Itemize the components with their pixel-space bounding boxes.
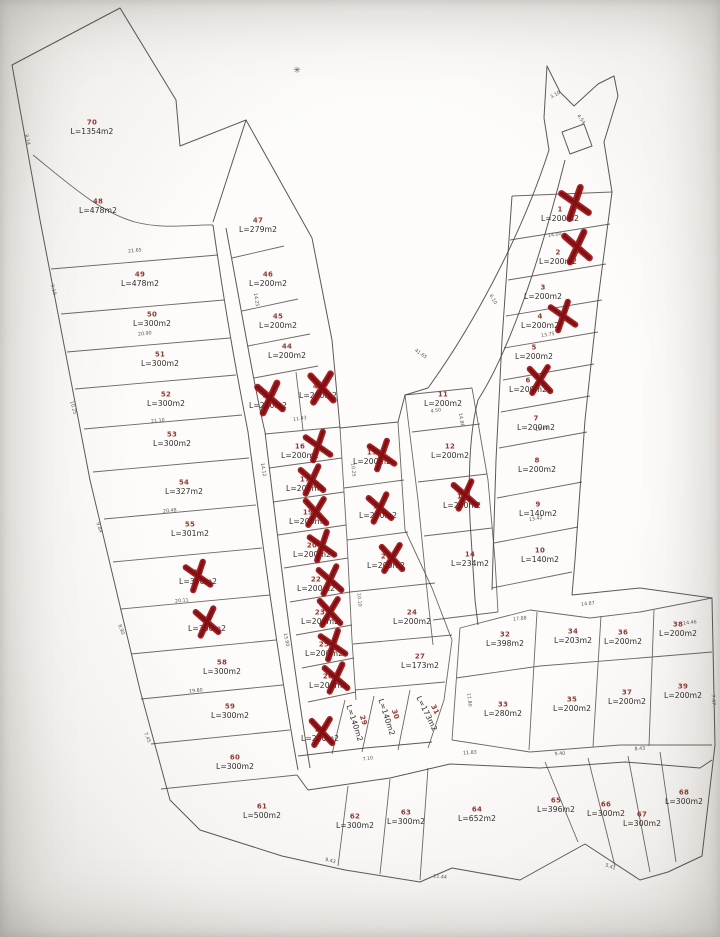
plot-area-label: L=300m2 <box>153 439 191 448</box>
plot-number: 27 <box>415 653 425 661</box>
plot-67: 67L=300m2 <box>623 811 661 829</box>
plot-number: 38 <box>673 621 683 629</box>
plot-number: 65 <box>551 797 561 805</box>
dimension-mark: 21.65 <box>128 247 142 254</box>
plot-number: 39 <box>678 683 688 691</box>
plot-64: 64L=652m2 <box>458 806 496 824</box>
plot-area-label: L=300m2 <box>133 319 171 328</box>
plot-area-label: L=200m2 <box>393 617 431 626</box>
plot-number: 62 <box>350 813 360 821</box>
plot-27: 27L=173m2 <box>401 653 439 671</box>
dimension-mark: 17.88 <box>513 615 527 622</box>
plot-area-label: L=200m2 <box>509 385 547 394</box>
plot-area-label: L=300m2 <box>141 359 179 368</box>
plot-area-label: L=203m2 <box>554 636 592 645</box>
plot-54: 54L=327m2 <box>165 479 203 497</box>
dimension-mark: 11.44 <box>433 873 447 880</box>
plot-number: 68 <box>679 789 689 797</box>
plot-14: 14L=234m2 <box>451 551 489 569</box>
dimension-mark: 9.40 <box>554 751 565 758</box>
plot-26: 26L=200m2 <box>309 664 347 691</box>
plot-13: 13L=200m2 <box>443 481 481 510</box>
plot-area-label: L=478m2 <box>79 206 117 215</box>
plot-16: 16L=200m2 <box>281 432 330 460</box>
plot-22: 22L=200m2 <box>297 566 341 593</box>
plot-area-label: L=200m2 <box>608 697 646 706</box>
plot-1: 1L=200m2 <box>541 187 589 223</box>
plot-number: 61 <box>257 803 267 811</box>
plot-number: 51 <box>155 351 165 359</box>
plot-area-label: L=1354m2 <box>71 127 114 136</box>
plot-area-label: L=500m2 <box>243 811 281 820</box>
plot-24: 24L=200m2 <box>393 609 431 627</box>
plot-number: 12 <box>445 443 455 451</box>
plot-37: 37L=200m2 <box>608 689 646 707</box>
plot-63: 63L=300m2 <box>387 809 425 827</box>
plot-number: 36 <box>618 629 628 637</box>
plot-15: 15L=200m2 <box>353 441 394 469</box>
plot-48: 48L=478m2 <box>79 198 117 216</box>
plot-52: 52L=300m2 <box>147 391 185 409</box>
plot-58: 58L=300m2 <box>203 659 241 677</box>
plot-45: 45L=200m2 <box>259 313 297 331</box>
dimension-mark: 13.75 <box>541 331 556 339</box>
dimension-mark: 4.50 <box>430 407 441 414</box>
dimension-mark: 8.14 <box>23 134 32 146</box>
plot-11: 11L=200m2 <box>424 391 462 409</box>
dimension-mark: 20.48 <box>163 507 177 514</box>
plot-area-label: L=200m2 <box>604 637 642 646</box>
plot-39: 39L=200m2 <box>664 683 702 701</box>
plot-number: 2 <box>555 249 560 257</box>
plot-number: 8 <box>534 457 539 465</box>
plot-area-label: L=300m2 <box>211 711 249 720</box>
plot-area-label: L=301m2 <box>171 529 209 538</box>
plot-number: 48 <box>93 198 103 206</box>
dimension-mark: 14.87 <box>581 600 595 607</box>
plot-56: 56L=300m2 <box>179 562 217 590</box>
asterisk-mark: ✳ <box>293 66 301 76</box>
plot-61: 61L=500m2 <box>243 803 281 821</box>
plot-area-label: L=398m2 <box>486 639 524 648</box>
plot-number: 53 <box>167 431 177 439</box>
plot-21: 21L=200m2 <box>367 545 405 571</box>
plot-area-label: L=200m2 <box>515 352 553 361</box>
plot-23: 23L=200m2 <box>301 599 340 626</box>
dimension-mark: 9.84 <box>94 522 103 534</box>
plot-area-label: L=279m2 <box>239 225 277 234</box>
plot-57: 57L=300m2 <box>188 608 226 635</box>
plot-area-label: L=200m2 <box>518 465 556 474</box>
dimension-mark: 9.43 <box>324 857 336 866</box>
dimension-mark: 14.00 <box>548 231 563 239</box>
plot-6: 6L=200m2 <box>509 367 550 394</box>
plot-number: 54 <box>179 479 189 487</box>
plot-51: 51L=300m2 <box>141 351 179 369</box>
plot-number: 35 <box>567 696 577 704</box>
plot-60: 60L=300m2 <box>216 754 254 772</box>
plot-17: 17L=200m2 <box>286 466 324 493</box>
plot-25: 25L=200m2 <box>305 631 345 659</box>
plot-number: 67 <box>637 811 647 819</box>
plot-area-label: L=300m2 <box>216 762 254 771</box>
dimension-mark: 9.10 <box>49 284 58 296</box>
plot-31: 31L=173m2 <box>414 691 446 733</box>
plot-number: 60 <box>230 754 240 762</box>
plot-area-label: L=327m2 <box>165 487 203 496</box>
plot-18: 18L=200m2 <box>359 494 397 521</box>
plot-area-label: L=300m2 <box>665 797 703 806</box>
plot-number: 6 <box>525 377 530 385</box>
plot-area-label: L=300m2 <box>147 399 185 408</box>
plot-number: 10 <box>535 547 545 555</box>
plot-number: 64 <box>472 806 482 814</box>
dimension-mark: 6.10 <box>488 293 499 305</box>
plot-area-label: L=200m2 <box>431 451 469 460</box>
plot-area-label: L=200m2 <box>249 279 287 288</box>
plot-area-label: L=200m2 <box>664 691 702 700</box>
land-plot-map: 8.149.1010.259.848.907.4521.6520.9021.10… <box>0 0 720 937</box>
dimension-mark: 10.10 <box>355 593 362 607</box>
plot-number: 5 <box>531 344 536 352</box>
plot-number: 32 <box>500 631 510 639</box>
plot-area-label: L=200m2 <box>659 629 697 638</box>
plot-50: 50L=300m2 <box>133 311 171 329</box>
plot-area-label: L=652m2 <box>458 814 496 823</box>
dimension-marks-layer: 8.149.1010.259.848.907.4521.6520.9021.10… <box>23 90 717 881</box>
plot-19: 19L=200m2 <box>289 499 327 526</box>
plot-number: 23 <box>315 609 325 617</box>
plot-number: 16 <box>295 443 305 451</box>
outer-boundary <box>12 8 715 882</box>
plot-area-label: L=300m2 <box>587 809 625 818</box>
dimension-mark: 11.43 <box>293 415 307 423</box>
dimension-mark: 19.80 <box>189 687 203 694</box>
plot-20: 20L=200m2 <box>293 532 334 560</box>
dimension-mark: 14.12 <box>259 463 267 478</box>
plot-area-label: L=200m2 <box>521 321 559 330</box>
plot-35: 35L=200m2 <box>553 696 591 714</box>
plot-36: 36L=200m2 <box>604 629 642 647</box>
plot-area-label: L=200m2 <box>259 321 297 330</box>
dimension-mark: 7.45 <box>142 732 152 744</box>
plot-46: 46L=200m2 <box>249 271 287 289</box>
plot-number: 52 <box>161 391 171 399</box>
plot-number: 63 <box>401 809 411 817</box>
plot-9: 9L=140m2 <box>519 501 557 519</box>
plot-5: 5L=200m2 <box>515 344 553 362</box>
plot-area-label: L=140m2 <box>519 509 557 518</box>
plot-2: 2L=200m2 <box>539 232 589 266</box>
dimension-mark: 7.47 <box>710 694 717 705</box>
dimension-mark: 41.65 <box>413 348 428 361</box>
plot-area-label: L=200m2 <box>524 292 562 301</box>
plot-53: 53L=300m2 <box>153 431 191 449</box>
plan-sheet: 8.149.1010.259.848.907.4521.6520.9021.10… <box>0 0 720 937</box>
plot-area-label: L=200m2 <box>268 351 306 360</box>
plot-number: 55 <box>185 521 195 529</box>
plot-number: 14 <box>465 551 475 559</box>
plot-32: 32L=398m2 <box>486 631 524 649</box>
plot-area-label: L=173m2 <box>401 661 439 670</box>
plot-number: 45 <box>273 313 283 321</box>
plot-30: 30L=140m2 <box>377 695 405 737</box>
plot-34: 34L=203m2 <box>554 628 592 646</box>
dimension-mark: 21.10 <box>151 417 165 424</box>
plot-number: 34 <box>568 628 578 636</box>
dimension-mark: 7.10 <box>362 755 373 762</box>
plot-49: 49L=478m2 <box>121 271 159 289</box>
plot-68: 68L=300m2 <box>665 789 703 807</box>
plot-55: 55L=301m2 <box>171 521 209 539</box>
dimension-mark: 14.46 <box>683 619 697 626</box>
dimension-mark: 11.83 <box>463 750 477 757</box>
plot-area-label: L=300m2 <box>623 819 661 828</box>
dimension-mark: 11.80 <box>465 693 472 707</box>
plot-number: 49 <box>135 271 145 279</box>
plot-number: 59 <box>225 703 235 711</box>
plot-62: 62L=300m2 <box>336 813 374 831</box>
plot-10: 10L=140m2 <box>521 547 559 565</box>
plot-number: 7 <box>533 415 538 423</box>
dimension-mark: 20.11 <box>175 597 189 604</box>
plot-33: 33L=280m2 <box>484 701 522 719</box>
plot-number: 22 <box>311 576 321 584</box>
plot-number: 66 <box>601 801 611 809</box>
plot-number: 3 <box>540 284 545 292</box>
plot-area-label: L=300m2 <box>387 817 425 826</box>
plot-number: 37 <box>622 689 632 697</box>
plot-8: 8L=200m2 <box>518 457 556 475</box>
plot-area-label: L=300m2 <box>336 821 374 830</box>
plot-number: 9 <box>535 501 540 509</box>
plot-number: 50 <box>147 311 157 319</box>
plot-area-label: L=280m2 <box>484 709 522 718</box>
plot-12: 12L=200m2 <box>431 443 469 461</box>
plot-area-label: L=200m2 <box>424 399 462 408</box>
plot-number: 58 <box>217 659 227 667</box>
plot-number: 11 <box>438 391 448 399</box>
plot-43: 43L=200m2 <box>249 383 287 413</box>
plot-area-label: L=478m2 <box>121 279 159 288</box>
plot-number: 1 <box>557 206 562 214</box>
plot-area-label: L=200m2 <box>517 423 555 432</box>
plot-area-label: L=140m2 <box>521 555 559 564</box>
plot-66: 66L=300m2 <box>587 801 625 819</box>
plot-3: 3L=200m2 <box>524 284 562 302</box>
dimension-mark: 14.25 <box>252 293 260 308</box>
plot-number: 24 <box>407 609 417 617</box>
dimension-mark: 14.86 <box>457 413 465 428</box>
plot-44: 44L=200m2 <box>268 343 306 361</box>
plot-59: 59L=300m2 <box>211 703 249 721</box>
plot-4: 4L=200m2 <box>521 302 575 330</box>
plot-number: 47 <box>253 217 263 225</box>
plot-28: 28L=200m2 <box>301 719 339 745</box>
plot-7: 7L=200m2 <box>517 415 555 433</box>
plot-42: 42L=200m2 <box>299 374 337 402</box>
plot-area-label: L=300m2 <box>203 667 241 676</box>
plot-29: 29L=140m2 <box>345 701 373 743</box>
plot-number: 44 <box>282 343 292 351</box>
plot-area-label: L=396m2 <box>537 805 575 814</box>
plot-number: 4 <box>537 313 542 321</box>
plot-number: 46 <box>263 271 273 279</box>
plot-47: 47L=279m2 <box>239 217 277 235</box>
plot-area-label: L=200m2 <box>553 704 591 713</box>
small-square-plot <box>562 124 592 154</box>
plot-65: 65L=396m2 <box>537 797 575 815</box>
plot-area-label: L=234m2 <box>451 559 489 568</box>
plot-number: 33 <box>498 701 508 709</box>
dimension-mark: 13.90 <box>282 632 291 647</box>
dimension-mark: 20.90 <box>138 330 152 337</box>
plot-70: 70L=1354m2 <box>71 119 114 137</box>
dimension-mark: 4.54 <box>575 113 586 125</box>
dimension-mark: 8.43 <box>634 746 645 753</box>
plot-number: 70 <box>87 119 97 127</box>
